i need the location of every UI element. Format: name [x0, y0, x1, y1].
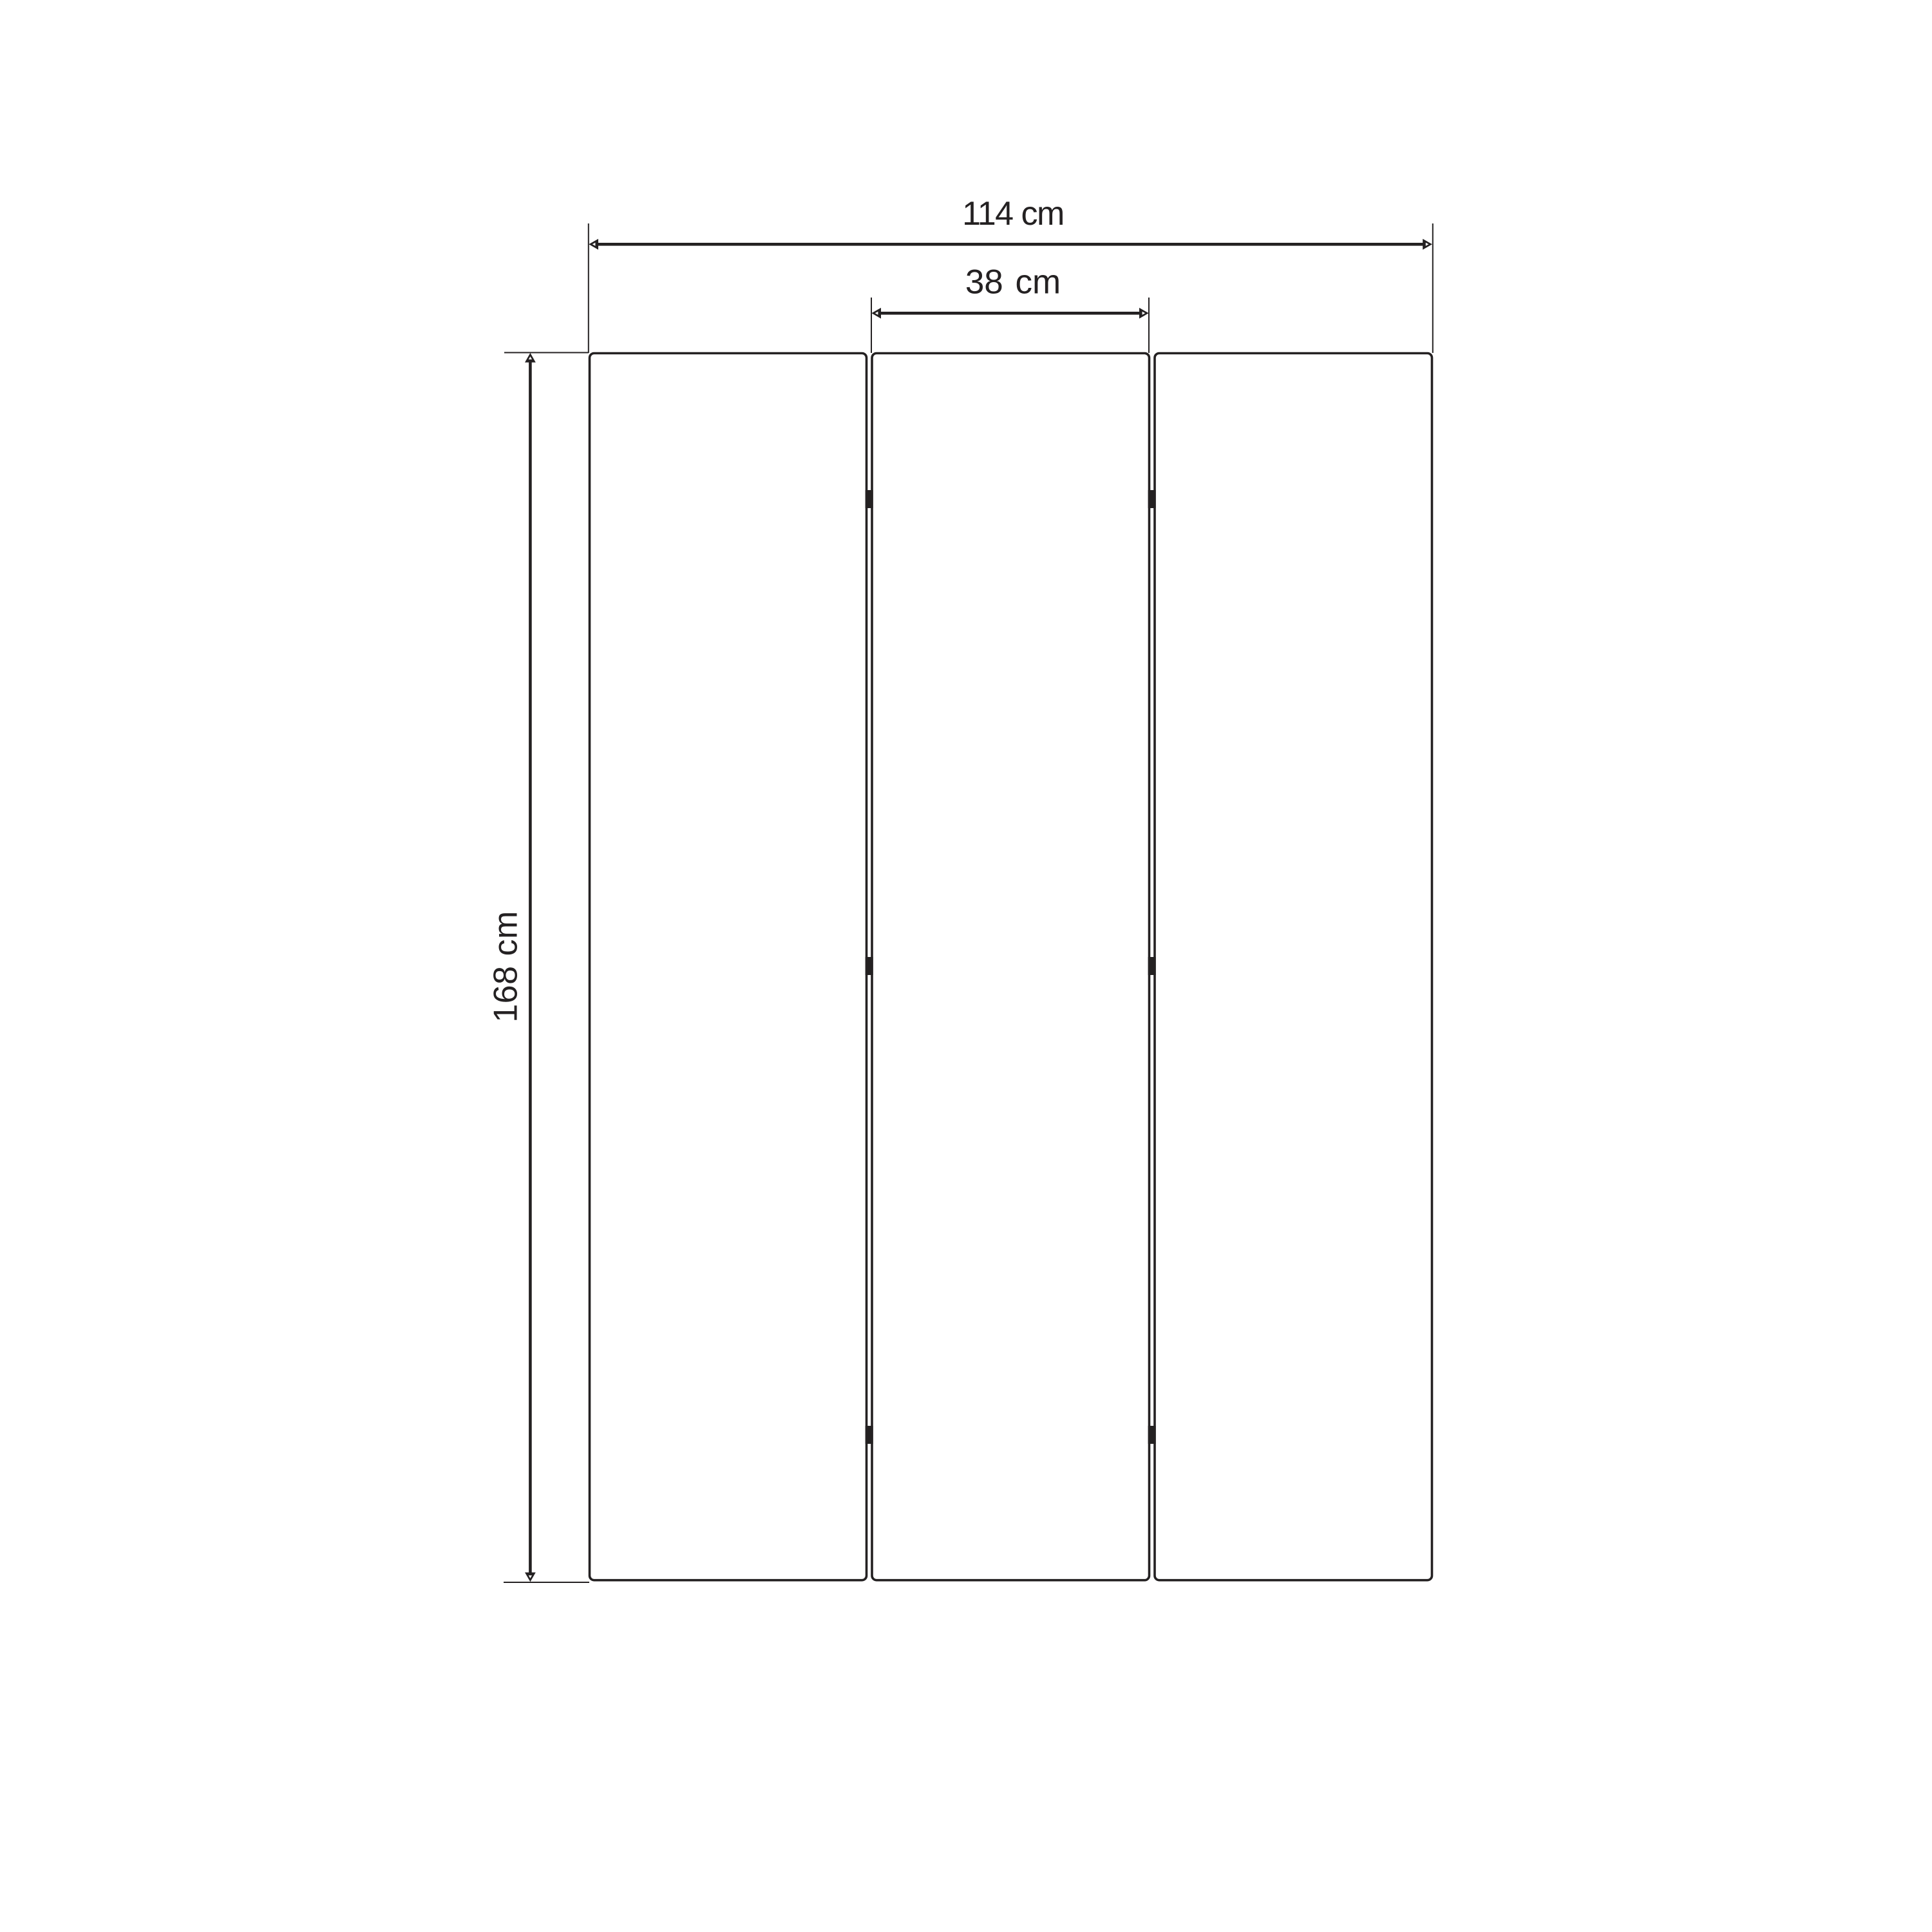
svg-text:38 cm: 38 cm: [965, 263, 1061, 301]
svg-text:114 cm: 114 cm: [962, 195, 1064, 232]
svg-text:168 cm: 168 cm: [488, 911, 525, 1023]
